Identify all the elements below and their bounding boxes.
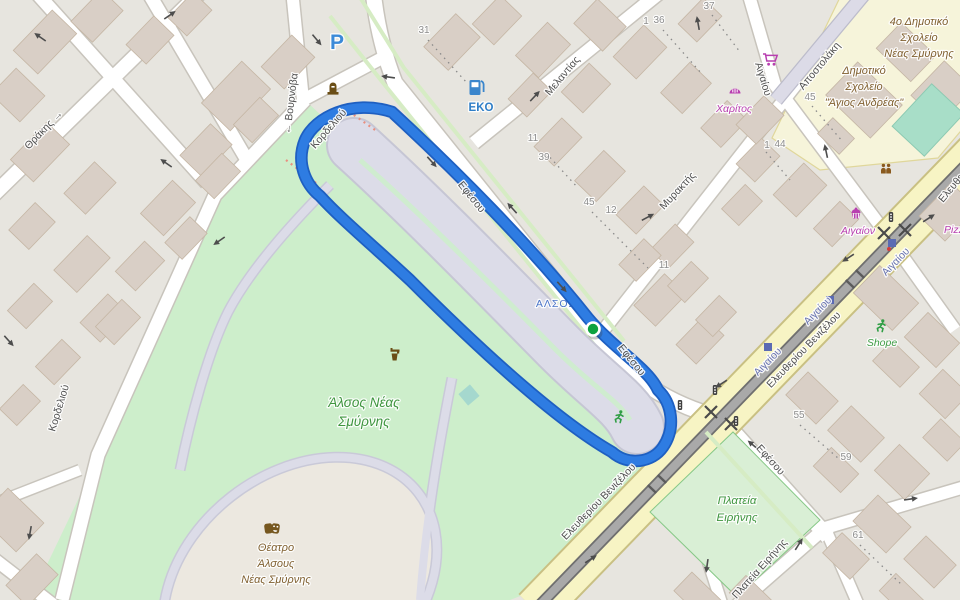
house-number: 55 [793, 410, 805, 421]
house-number: 12 [605, 205, 617, 216]
house-number: 44 [774, 139, 786, 150]
map-canvas[interactable]: ΑΛΣΟΣ ΑιγαίουΑιγαίουΑιγαίου 311363711394… [0, 0, 960, 600]
traffic-light-icon [889, 212, 893, 222]
house-number: 1 [764, 140, 770, 151]
poi-label: EKO [469, 102, 494, 114]
house-number: 11 [659, 260, 670, 271]
house-number: 39 [538, 152, 550, 163]
poi-label: Pizza [944, 224, 960, 236]
house-number: 59 [840, 452, 852, 463]
house-number: 11 [528, 133, 539, 144]
poi-label: Χαρίτος [715, 103, 753, 115]
house-number: 37 [703, 1, 715, 12]
house-number: 1 [643, 16, 649, 27]
crossing-dot [887, 247, 891, 251]
house-number: 45 [583, 197, 595, 208]
house-number: 36 [653, 15, 665, 26]
tram-stop-marker [888, 239, 896, 247]
traffic-light-icon [678, 400, 682, 410]
house-number: 61 [852, 530, 864, 541]
map[interactable]: ΑΛΣΟΣ ΑιγαίουΑιγαίουΑιγαίου 311363711394… [0, 0, 960, 600]
poi-label: Shope [867, 337, 898, 349]
poi-label: P [330, 31, 344, 54]
poi-label: Αιγαίον [840, 225, 876, 237]
house-number: 45 [804, 92, 816, 103]
house-number: 31 [418, 25, 430, 36]
traffic-light-icon [734, 416, 738, 426]
